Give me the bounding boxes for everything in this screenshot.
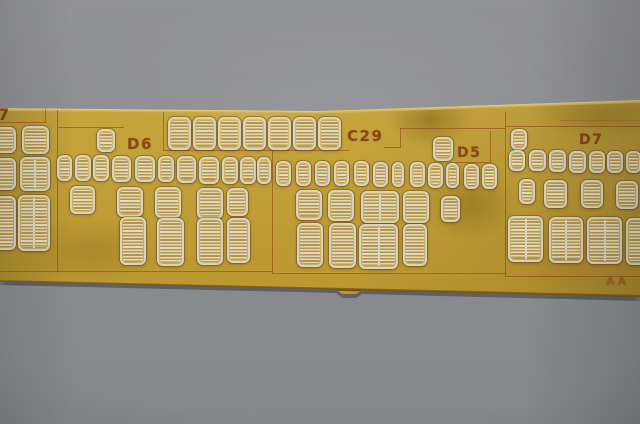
etch-line [455, 162, 491, 163]
vent-part [257, 157, 271, 184]
vent-part [410, 162, 425, 187]
vent-part [508, 216, 543, 262]
vent-center-rib [604, 220, 606, 261]
etch-line [560, 120, 640, 121]
vent-part [197, 188, 223, 219]
vent-part [293, 117, 316, 150]
vent-part [199, 157, 219, 184]
vent-part [218, 117, 241, 150]
vent-part [155, 187, 181, 218]
vent-part [157, 218, 184, 266]
vent-part [482, 164, 497, 189]
vent-part [297, 223, 323, 267]
maker-mark: AA [606, 276, 629, 288]
vent-part [193, 117, 216, 150]
vent-part [135, 156, 155, 182]
vent-part [549, 217, 583, 263]
vent-part [158, 156, 174, 182]
vent-part [296, 190, 322, 220]
etch-line [163, 112, 164, 151]
vent-part [392, 162, 404, 187]
vent-part [329, 223, 356, 268]
etch-line [505, 126, 640, 127]
vent-part [428, 163, 443, 188]
vent-part [607, 151, 623, 173]
vent-part [222, 157, 238, 184]
vent-part [626, 218, 640, 265]
vent-part [433, 137, 453, 161]
vent-center-rib [379, 194, 381, 220]
etch-line [163, 150, 349, 151]
photo: 7D6C29D5D7AA [0, 0, 640, 424]
vent-part [177, 156, 196, 183]
vent-part [511, 129, 527, 150]
etch-line [400, 128, 401, 148]
vent-part [626, 151, 640, 173]
vent-part [112, 156, 131, 182]
vent-part [549, 150, 566, 172]
vent-part [403, 191, 429, 223]
vent-center-rib [33, 198, 35, 248]
etch-label-d7: D7 [579, 133, 603, 147]
vent-part [18, 195, 50, 251]
vent-part [361, 191, 399, 223]
etch-label-c29: C29 [347, 129, 383, 144]
vent-part [0, 158, 16, 190]
vent-part [587, 217, 622, 264]
etch-line [0, 271, 273, 272]
vent-part [446, 163, 459, 188]
vent-center-rib [34, 160, 36, 188]
vent-part [544, 180, 567, 208]
vent-part [117, 187, 143, 217]
vent-part [240, 157, 256, 184]
etch-line [45, 109, 46, 123]
vent-part [227, 218, 250, 263]
vent-part [529, 150, 546, 171]
vent-part [0, 196, 16, 250]
vent-part [315, 161, 330, 186]
vent-part [75, 155, 91, 181]
vent-part [0, 127, 16, 153]
etch-label-7: 7 [0, 107, 11, 123]
vent-center-rib [525, 219, 527, 259]
vent-part [519, 179, 535, 204]
etch-line [400, 128, 506, 129]
vent-part [227, 188, 248, 216]
etch-line [58, 127, 124, 128]
vent-part [581, 180, 603, 208]
vent-part [373, 162, 388, 187]
vent-part [464, 164, 479, 189]
vent-center-rib [565, 220, 567, 260]
vent-part [93, 155, 109, 181]
etch-line [272, 151, 273, 273]
etch-line [505, 112, 506, 277]
etch-line [384, 147, 401, 148]
etch-line [272, 273, 506, 274]
vent-part [334, 161, 349, 186]
vent-part [70, 186, 95, 214]
etch-label-d6: D6 [127, 137, 153, 152]
vent-part [569, 151, 586, 173]
vent-part [318, 117, 341, 150]
vent-part [328, 190, 354, 221]
vent-part [57, 155, 72, 181]
vent-part [354, 161, 369, 186]
vent-part [509, 150, 525, 171]
vent-part [276, 161, 291, 186]
vent-part [296, 161, 311, 186]
vent-part [589, 151, 605, 173]
vent-part [168, 117, 191, 150]
etch-line [490, 131, 491, 163]
vent-part [197, 218, 223, 265]
etch-line [57, 110, 58, 272]
vent-center-rib [378, 227, 380, 266]
vent-part [359, 224, 398, 269]
vent-part [268, 117, 291, 150]
vent-part [616, 181, 638, 209]
vent-part [120, 217, 146, 265]
etch-label-d5: D5 [457, 146, 481, 160]
vent-part [243, 117, 266, 150]
vent-part [403, 224, 427, 266]
vent-part [22, 126, 49, 154]
vent-part [441, 196, 460, 222]
vent-part [20, 157, 50, 191]
vent-part [97, 129, 115, 152]
